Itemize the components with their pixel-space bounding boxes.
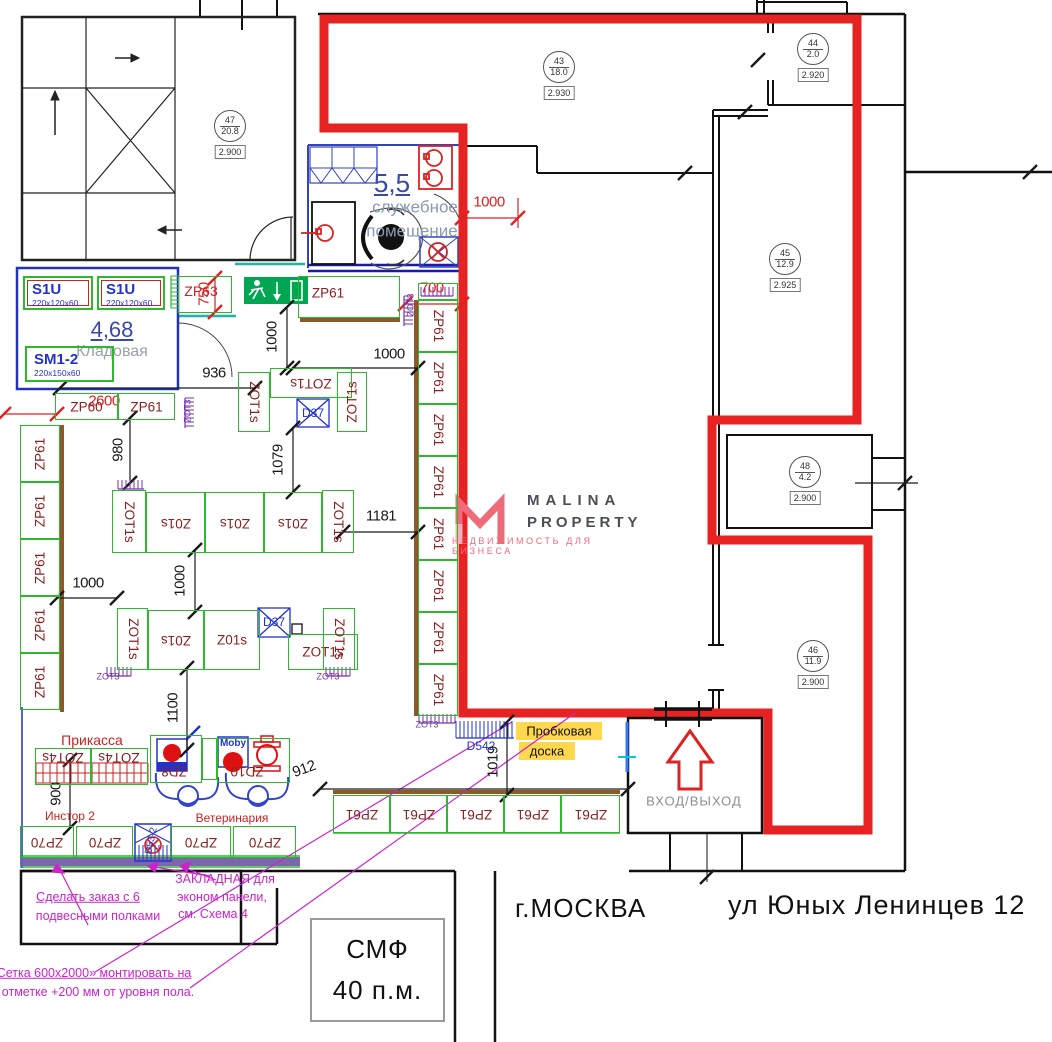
room-elevation: 2.900	[790, 491, 821, 505]
shelf-label: ZOT1s	[332, 618, 346, 659]
address-street: ул Юных Ленинцев 12	[728, 890, 1025, 921]
shelf-label: ZP61	[431, 362, 445, 394]
plan-label: эконом панели,	[177, 891, 267, 904]
dimension-label: 1100	[166, 693, 181, 723]
address-city: г.МОСКВА	[515, 893, 646, 924]
room-marker: 4512.92.925	[769, 243, 801, 275]
room-marker: 484.22.900	[789, 456, 821, 488]
logo-line2: PROPERTY	[527, 514, 642, 531]
dimension-label: 1019	[486, 746, 501, 777]
plan-label: D53-2	[144, 827, 159, 856]
dimension-label: 900	[49, 782, 64, 806]
shelf-label: ZOT1s	[247, 381, 261, 422]
smf-stamp: СМФ 40 п.м.	[310, 918, 445, 1022]
shelf-unit	[202, 738, 217, 780]
plan-label: ZOT3	[184, 399, 193, 422]
plan-label: D37	[263, 616, 285, 628]
room-number: 44	[803, 39, 823, 50]
plan-label: Прикасса	[61, 733, 123, 747]
shelf-label: ZP61	[33, 551, 47, 583]
plan-label: Сделать заказ с 6	[36, 891, 140, 904]
room-number-circle: 484.2	[789, 456, 821, 488]
room-elevation: 2.900	[215, 145, 246, 159]
room-marker: 4611.92.900	[797, 640, 829, 672]
shelf-label: ZP61	[345, 807, 377, 821]
stamp-line2: 40 п.м.	[333, 975, 423, 1006]
room-number-circle: 4318.0	[543, 51, 575, 83]
room-area: 11.9	[803, 657, 823, 667]
shelf-label: ZOT1s	[345, 381, 359, 422]
plan-label: Пробковая	[526, 725, 591, 738]
shelf-label: ZP61	[402, 807, 434, 821]
room-elevation: 2.925	[770, 278, 801, 292]
plan-label: Инстор 2	[45, 810, 95, 822]
plan-label: ZOT3	[96, 673, 119, 682]
plan-label: 4,68	[91, 319, 134, 341]
plan-label: Ветеринария	[196, 812, 269, 824]
plan-label: доска	[530, 745, 565, 758]
room-marker: 442.02.920	[797, 33, 829, 65]
room-area: 18.0	[549, 68, 569, 78]
shelf-label: ZOT4s	[42, 750, 83, 764]
plan-label: ZOT3	[316, 673, 339, 682]
room-marker: 4720.82.900	[214, 110, 246, 142]
shelf-label: ZD8	[161, 764, 187, 778]
cabinet-title: S1U	[32, 282, 61, 297]
shelf-label: Z01s	[161, 633, 191, 647]
dimension-label: 1181	[366, 509, 396, 524]
room-marker: 4318.02.930	[543, 51, 575, 83]
shelf-label: ZP70	[184, 835, 216, 849]
room-number: 43	[549, 57, 569, 68]
plan-label: отметке +200 мм от уровня пола.	[2, 986, 194, 999]
plan-label: помещение	[366, 223, 457, 240]
logo-tagline: НЕДВИЖИМОСТЬ ДЛЯ БИЗНЕСА	[452, 536, 652, 556]
room-number: 48	[795, 462, 815, 473]
shelf-label: ZP60	[70, 400, 102, 414]
cabinet: SM1-2220x150x60	[25, 346, 114, 382]
room-number: 47	[220, 116, 240, 127]
shelf-label: ZP61	[33, 608, 47, 640]
shelf-label: ZP70	[248, 835, 280, 849]
shelf-label: ZP61	[312, 286, 344, 300]
room-number: 46	[803, 646, 823, 657]
shelf-label: ZP70	[31, 835, 63, 849]
room-area: 2.0	[803, 50, 823, 60]
shelf-label: ZP61	[516, 807, 548, 821]
shelf-label: ZP61	[431, 570, 445, 602]
shelf-label: Z01s	[217, 633, 247, 647]
shelf-label: ZP61	[431, 674, 445, 706]
cabinet-size: 220x120x60	[106, 299, 152, 308]
room-number-circle: 442.0	[797, 33, 829, 65]
cabinet-size: 220x150x60	[34, 369, 80, 378]
cabinet-size: 220x120x60	[32, 299, 78, 308]
room-elevation: 2.930	[544, 86, 575, 100]
dimension-label: 1000	[173, 565, 188, 596]
room-number-circle: 4512.9	[769, 243, 801, 275]
shelf-label: ZP61	[33, 494, 47, 526]
plan-label: ZOT3	[407, 293, 416, 316]
plan-label: служебное	[372, 199, 458, 216]
logo-line1: MALINA	[527, 492, 621, 509]
shelf-label: ZP61	[574, 807, 606, 821]
shelf-label: Z01s	[160, 516, 190, 530]
shelf-label: ZOT4s	[98, 750, 139, 764]
shelf-unit	[178, 276, 232, 313]
shelf-label: Z01s	[219, 516, 249, 530]
shelf-unit	[418, 283, 458, 300]
stamp-line1: СМФ	[346, 934, 409, 965]
shelf-label: ZD10	[230, 764, 263, 778]
dimension-label: 1000	[72, 576, 103, 591]
plan-label: Сетка 600x2000» монтировать на	[0, 967, 191, 980]
shelf-label: ZP61	[431, 518, 445, 550]
shelf-label: ZP61	[130, 400, 162, 414]
shelf-label: ZP61	[33, 437, 47, 469]
plan-label: ВХОД/ВЫХОД	[646, 795, 742, 808]
plan-label: ZOT3	[415, 721, 438, 730]
dimension-label: 912	[290, 758, 317, 780]
shelf-label: ZP61	[431, 414, 445, 446]
dimension-label: 1000	[473, 195, 504, 210]
malina-property-logo: MALINA PROPERTY НЕДВИЖИМОСТЬ ДЛЯ БИЗНЕСА	[452, 486, 652, 548]
shelf-label: ZOT1s	[331, 501, 345, 542]
shelf-label: ZP61	[431, 622, 445, 654]
room-number-circle: 4611.9	[797, 640, 829, 672]
room-number-circle: 4720.8	[214, 110, 246, 142]
shelf-label: ZP70	[88, 835, 120, 849]
room-elevation: 2.920	[798, 68, 829, 82]
shelf-label: ZP61	[33, 665, 47, 697]
shelf-label: ZOT1s	[126, 618, 140, 659]
room-area: 20.8	[220, 127, 240, 137]
plan-label: см. Схема 4	[178, 908, 248, 921]
shelf-label: ZP61	[431, 310, 445, 342]
shelf-label: ZP61	[431, 466, 445, 498]
room-area: 12.9	[775, 260, 795, 270]
dimension-label: 1079	[271, 444, 286, 475]
floor-plan: 5,5служебноепомещение4,68КладоваяПрикасс…	[0, 0, 1052, 1042]
dimension-label: 980	[111, 438, 126, 462]
shelf-label: ZOT1s	[290, 376, 331, 390]
dimension-label: 936	[202, 366, 226, 381]
shelf-label: ZOT1s	[122, 501, 136, 542]
shelf-label: Z01s	[278, 516, 308, 530]
plan-label: D37	[302, 407, 324, 419]
room-elevation: 2.900	[798, 675, 829, 689]
cabinet-title: S1U	[106, 282, 135, 297]
shelf-label: ZP61	[459, 807, 491, 821]
plan-label: 5,5	[374, 170, 410, 196]
plan-label: ЗАКЛАДНАЯ для	[175, 873, 275, 886]
dimension-label: 1000	[265, 321, 280, 352]
room-area: 4.2	[795, 473, 815, 483]
cabinet: S1U220x120x60	[23, 276, 93, 310]
cabinet: S1U220x120x60	[97, 276, 165, 310]
dimension-label: 1000	[373, 347, 404, 362]
plan-label: подвесными полками	[36, 910, 160, 923]
cabinet-title: SM1-2	[34, 352, 78, 367]
room-number: 45	[775, 249, 795, 260]
